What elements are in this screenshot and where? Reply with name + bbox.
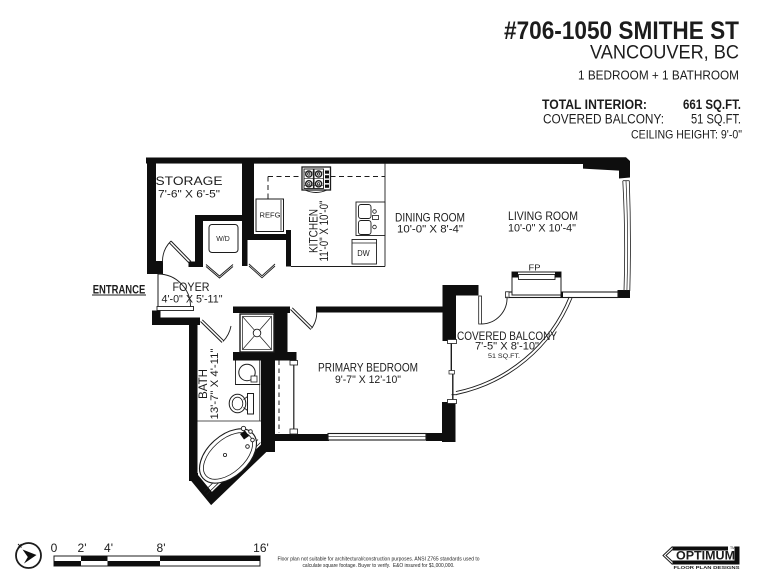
svg-text:1 BEDROOM + 1 BATHROOM: 1 BEDROOM + 1 BATHROOM (578, 68, 739, 83)
svg-text:OPTIMUM: OPTIMUM (676, 551, 735, 563)
svg-text:16': 16' (253, 541, 269, 555)
svg-text:13'-7" X 4'-11": 13'-7" X 4'-11" (209, 348, 221, 419)
svg-text:VANCOUVER, BC: VANCOUVER, BC (590, 42, 739, 64)
svg-text:TOTAL INTERIOR:: TOTAL INTERIOR: (542, 97, 647, 112)
svg-text:9'-7" X 12'-10": 9'-7" X 12'-10" (335, 374, 401, 386)
svg-text:TM: TM (730, 546, 735, 550)
svg-text:7'-6" X 6'-5": 7'-6" X 6'-5" (158, 189, 220, 201)
svg-text:7'-5" X 8'-10": 7'-5" X 8'-10" (475, 341, 539, 353)
svg-text:PRIMARY BEDROOM: PRIMARY BEDROOM (318, 361, 418, 375)
svg-text:CEILING HEIGHT: 9'-0": CEILING HEIGHT: 9'-0" (631, 128, 742, 142)
svg-text:4'-0" X 5'-11": 4'-0" X 5'-11" (162, 294, 223, 306)
svg-text:calculate square footage. Buye: calculate square footage. Buyer to verif… (303, 563, 455, 569)
svg-text:4': 4' (104, 541, 113, 555)
svg-text:W/D: W/D (216, 234, 230, 243)
svg-text:STORAGE: STORAGE (156, 174, 223, 188)
svg-text:FOYER: FOYER (173, 280, 210, 294)
svg-text:10'-0" X 8'-4": 10'-0" X 8'-4" (397, 224, 463, 236)
svg-text:Floor plan not suitable for ar: Floor plan not suitable for architectura… (278, 556, 481, 562)
svg-text:661 SQ.FT.: 661 SQ.FT. (683, 97, 741, 112)
svg-text:REFG: REFG (260, 211, 281, 220)
svg-text:51 SQ.FT.: 51 SQ.FT. (488, 353, 520, 360)
svg-text:10'-0" X 10'-4": 10'-0" X 10'-4" (508, 223, 576, 235)
svg-text:DW: DW (357, 249, 370, 258)
svg-text:COVERED BALCONY:: COVERED BALCONY: (543, 112, 664, 127)
svg-text:FP: FP (529, 263, 541, 273)
svg-text:0: 0 (51, 541, 58, 555)
svg-text:LIVING ROOM: LIVING ROOM (508, 209, 578, 223)
svg-text:11'-0" X 10'-0": 11'-0" X 10'-0" (319, 201, 331, 262)
svg-text:8': 8' (157, 541, 166, 555)
svg-text:51 SQ.FT.: 51 SQ.FT. (691, 112, 741, 127)
svg-text:2': 2' (78, 541, 87, 555)
svg-text:FLOOR PLAN DESIGNS: FLOOR PLAN DESIGNS (674, 565, 741, 571)
svg-text:BATH: BATH (196, 369, 210, 399)
svg-text:DINING ROOM: DINING ROOM (395, 211, 465, 225)
